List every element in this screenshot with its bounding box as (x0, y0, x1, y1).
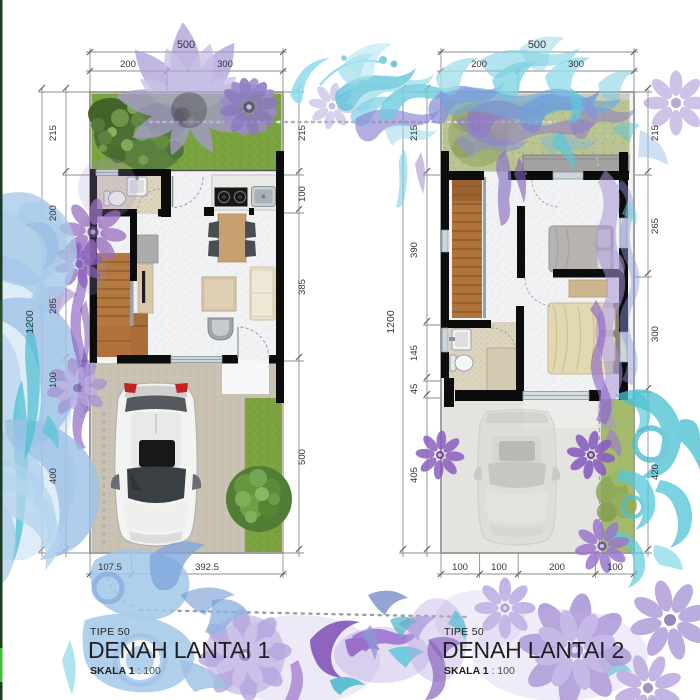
svg-text:1200: 1200 (24, 310, 36, 334)
svg-text:420: 420 (650, 464, 661, 480)
svg-text:SKALA 1 : 100: SKALA 1 : 100 (90, 665, 161, 677)
svg-text:200: 200 (549, 562, 565, 573)
svg-text:400: 400 (48, 468, 59, 484)
svg-text:392.5: 392.5 (195, 562, 219, 573)
svg-text:500: 500 (177, 39, 195, 51)
svg-text:200: 200 (471, 59, 487, 70)
svg-text:DENAH LANTAI 1: DENAH LANTAI 1 (88, 637, 270, 663)
svg-text:DENAH LANTAI 2: DENAH LANTAI 2 (442, 637, 624, 663)
svg-text:500: 500 (528, 39, 546, 51)
svg-text:215: 215 (48, 125, 59, 141)
svg-text:200: 200 (120, 59, 136, 70)
svg-text:100: 100 (48, 372, 59, 388)
svg-text:100: 100 (297, 186, 308, 202)
svg-text:300: 300 (568, 59, 584, 70)
svg-text:265: 265 (650, 218, 661, 234)
svg-text:100: 100 (607, 562, 623, 573)
svg-text:100: 100 (491, 562, 507, 573)
svg-text:215: 215 (297, 125, 308, 141)
svg-text:285: 285 (48, 298, 59, 314)
svg-text:45: 45 (409, 384, 420, 395)
svg-text:390: 390 (409, 242, 420, 258)
svg-text:215: 215 (409, 125, 420, 141)
svg-text:100: 100 (452, 562, 468, 573)
svg-text:145: 145 (409, 345, 420, 361)
svg-text:500: 500 (297, 449, 308, 465)
svg-text:215: 215 (650, 125, 661, 141)
svg-text:300: 300 (217, 59, 233, 70)
svg-text:107.5: 107.5 (98, 562, 122, 573)
svg-text:385: 385 (297, 279, 308, 295)
svg-text:405: 405 (409, 467, 420, 483)
svg-text:300: 300 (650, 326, 661, 342)
svg-text:1200: 1200 (385, 310, 397, 334)
svg-text:SKALA 1 : 100: SKALA 1 : 100 (444, 665, 515, 677)
svg-text:200: 200 (48, 205, 59, 221)
